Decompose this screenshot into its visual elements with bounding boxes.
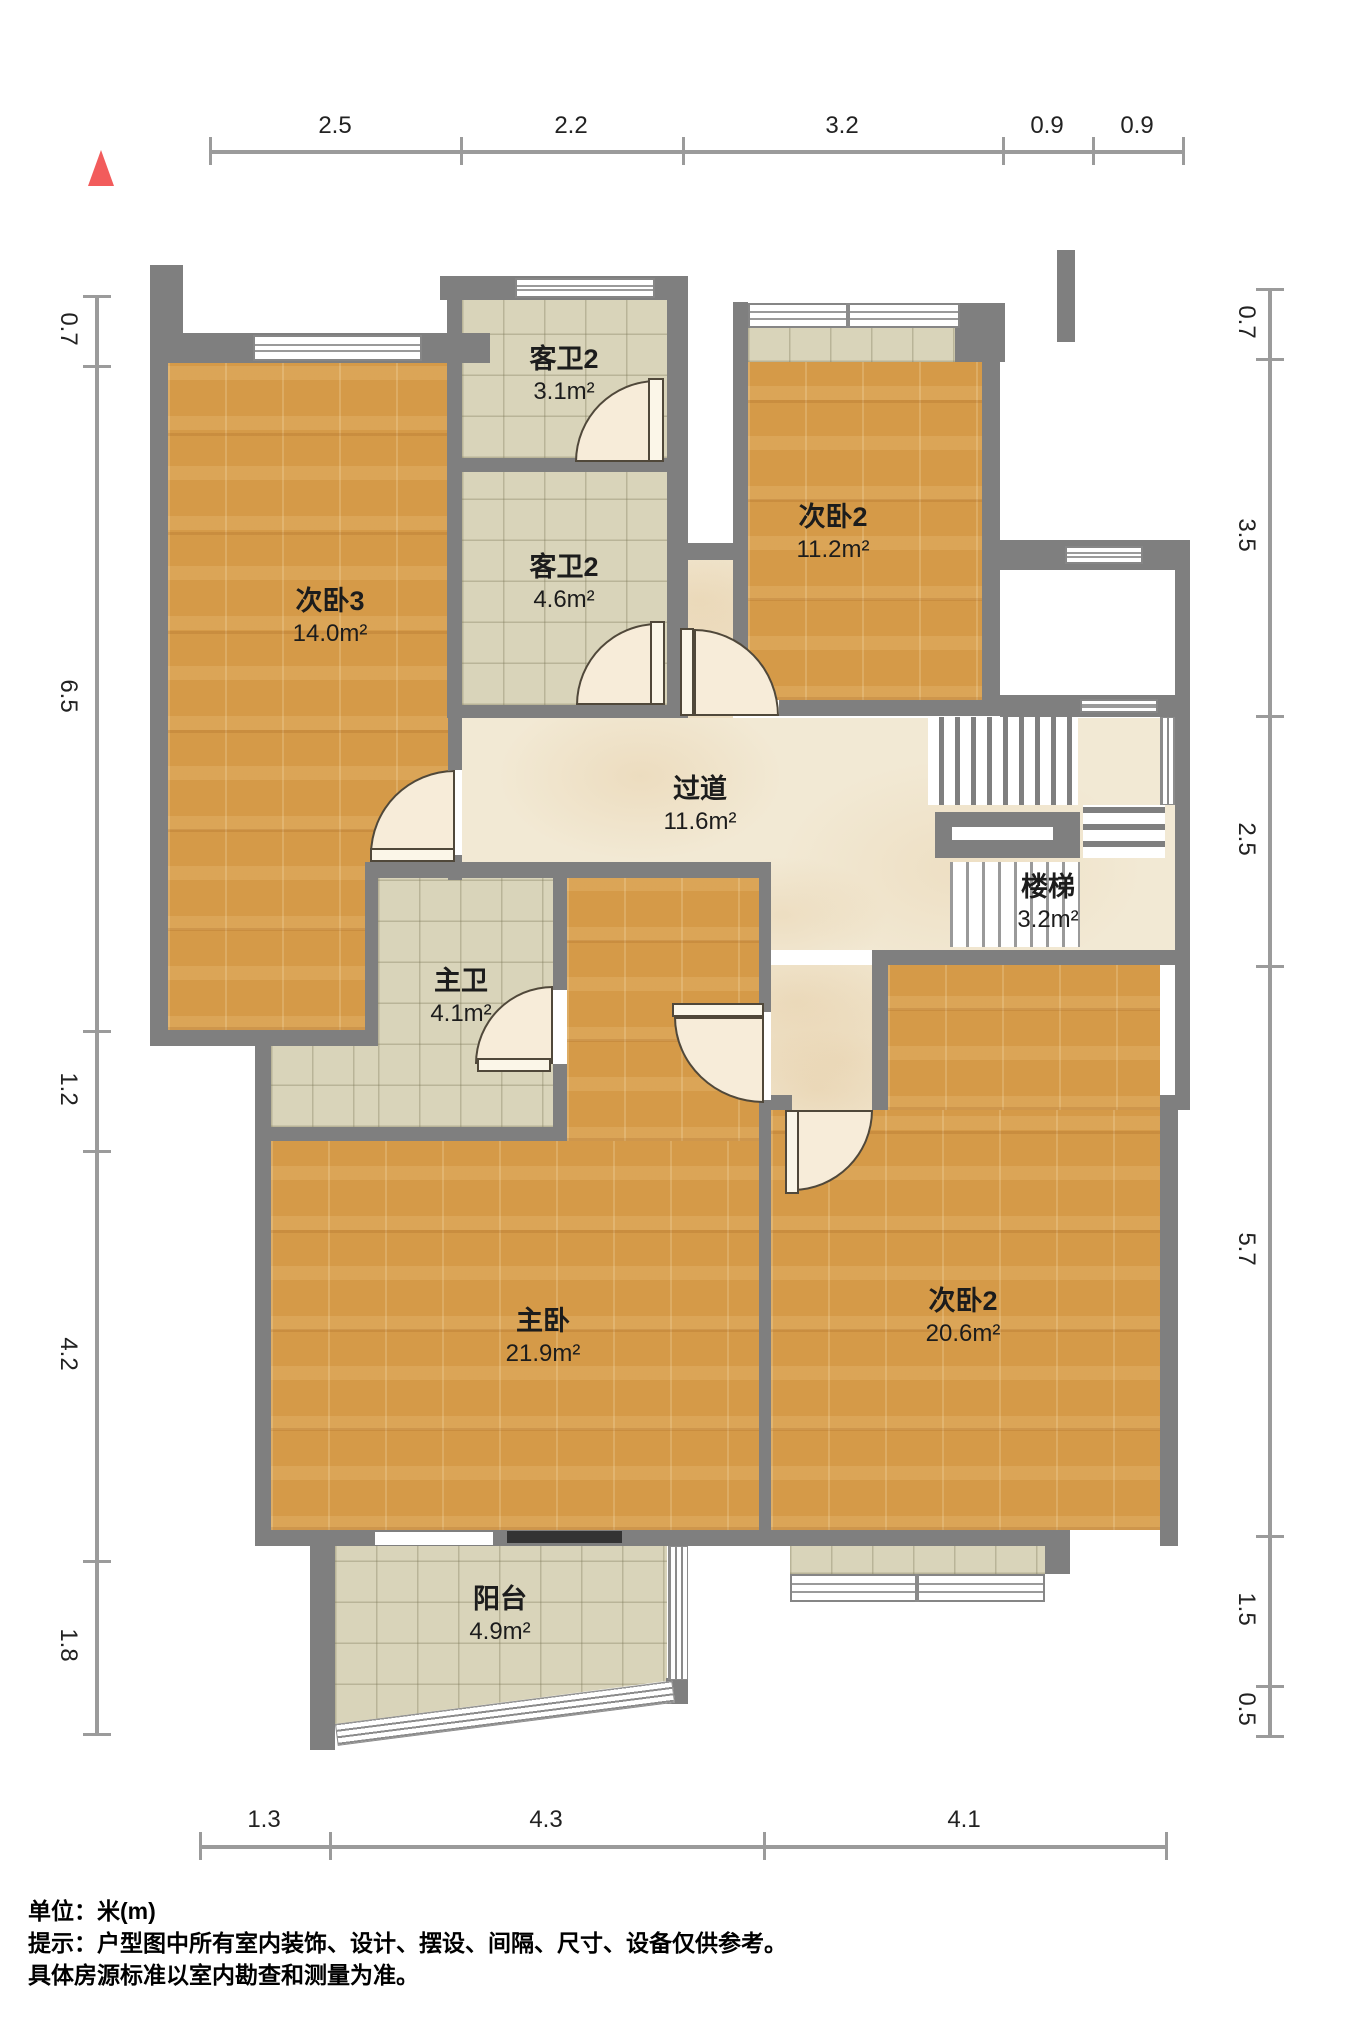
bedroom2-bottom-floor-upper — [888, 965, 1160, 1110]
wall — [365, 878, 378, 1046]
room-label-hallway: 过道11.6m² — [620, 773, 780, 837]
wall — [872, 950, 888, 1110]
wall — [779, 700, 982, 716]
wall-outer-right — [1175, 540, 1190, 1110]
wall — [1057, 250, 1075, 342]
room-label-master-bath: 主卫4.1m² — [381, 965, 541, 1029]
window-bedroom3 — [253, 335, 422, 361]
door-leaf-bedroom2-bottom — [785, 1110, 799, 1194]
wall — [1045, 1530, 1070, 1574]
wall — [771, 1530, 1060, 1546]
wall — [982, 362, 1000, 716]
room-label-stairs: 楼梯3.2m² — [968, 871, 1128, 935]
wall — [447, 705, 688, 718]
footer-hint-line: 提示：户型图中所有室内装饰、设计、摆设、间隔、尺寸、设备仅供参考。 — [28, 1924, 787, 1958]
room-label-master-bedroom: 主卧21.9m² — [463, 1305, 623, 1369]
room-label-bedroom2-bottom: 次卧220.6m² — [883, 1285, 1043, 1349]
window-bedroom2-top — [748, 303, 960, 328]
window-divider — [846, 303, 850, 328]
door-leaf-guest-bath-a — [648, 378, 664, 462]
door-leaf-master-bath — [477, 1058, 551, 1072]
north-arrow-icon — [88, 150, 114, 186]
wall-outer-right-lower — [1160, 1095, 1178, 1546]
wall-balcony-left — [310, 1530, 335, 1750]
balcony-door-opening — [507, 1531, 622, 1543]
window-master-bedroom — [375, 1532, 493, 1545]
floor-plan: 次卧314.0m² 客卫23.1m² 客卫24.6m² 次卧211.2m² 过道… — [0, 0, 1371, 2027]
stairs-side-railing — [1160, 717, 1175, 805]
wall — [872, 950, 1175, 965]
wall — [955, 303, 1005, 362]
master-bath-floor-ext — [271, 1046, 378, 1127]
bedroom2-top-baywindow-sill — [748, 328, 960, 362]
balcony-railing-right — [668, 1546, 688, 1680]
window-divider — [915, 1574, 919, 1602]
wall — [759, 878, 771, 1012]
window-stairwell-lower — [1080, 699, 1158, 713]
door-leaf-bedroom3 — [370, 848, 455, 862]
wall — [759, 1100, 771, 1530]
stairs-upper-run — [928, 717, 1078, 805]
wall — [150, 265, 183, 335]
door-leaf-bedroom2-top — [680, 628, 694, 716]
stairs-landing-slot — [952, 827, 1053, 840]
footer-note-line: 具体房源标准以室内勘查和测量为准。 — [28, 1956, 419, 1990]
wall — [688, 543, 733, 560]
stairs-landing-steps — [1083, 805, 1165, 858]
room-label-bedroom3: 次卧314.0m² — [250, 585, 410, 649]
wall — [771, 1095, 792, 1110]
footer-unit-line: 单位：米(m) — [28, 1892, 156, 1926]
wall — [150, 265, 168, 1046]
door-leaf-guest-bath-b — [650, 621, 665, 705]
room-label-balcony: 阳台4.9m² — [420, 1583, 580, 1647]
room-label-guest-bath-b: 客卫24.6m² — [484, 551, 644, 615]
room-label-guest-bath-a: 客卫23.1m² — [484, 343, 644, 407]
wall-outer-left — [255, 1030, 271, 1544]
hallway-corridor-floor — [771, 965, 872, 1110]
wall — [365, 862, 771, 878]
wall — [447, 276, 462, 718]
door-leaf-master-bedroom — [672, 1003, 764, 1017]
bedroom2-bottom-baywindow-sill — [790, 1546, 1045, 1574]
room-label-bedroom2-top: 次卧211.2m² — [753, 501, 913, 565]
wall — [255, 1127, 567, 1141]
wall — [553, 878, 567, 990]
window-stairwell-upper — [1065, 546, 1143, 564]
window-guest-bath — [515, 278, 655, 298]
